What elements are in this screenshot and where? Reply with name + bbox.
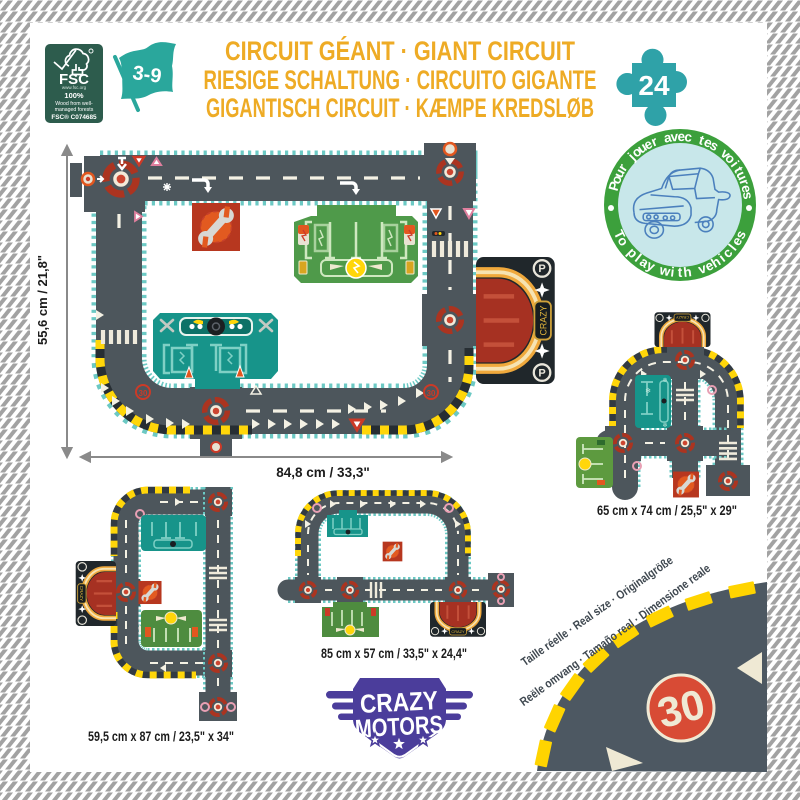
svg-text:managed forests: managed forests [55,107,94,113]
svg-text:CIRCUIT GÉANT · GIANT CIRCUIT: CIRCUIT GÉANT · GIANT CIRCUIT [225,35,575,66]
svg-text:84,8 cm / 33,3": 84,8 cm / 33,3" [276,465,369,480]
svg-text:65 cm x 74 cm / 25,5" x 29": 65 cm x 74 cm / 25,5" x 29" [597,503,737,518]
svg-text:❄: ❄ [645,387,651,395]
svg-text:30: 30 [139,389,148,398]
svg-text:P: P [538,263,545,275]
svg-text:100%: 100% [64,91,84,100]
svg-text:❄: ❄ [662,422,667,429]
svg-text:59,5 cm x 87 cm / 23,5" x 34": 59,5 cm x 87 cm / 23,5" x 34" [88,729,234,744]
svg-text:24: 24 [638,70,670,101]
svg-text:❄: ❄ [662,377,667,384]
svg-text:RIESIGE SCHALTUNG · CIRCUITO G: RIESIGE SCHALTUNG · CIRCUITO GIGANTE [204,65,597,95]
svg-text:FSC® C074685: FSC® C074685 [51,113,97,121]
svg-text:P: P [538,368,545,380]
svg-text:55,6 cm / 21,8": 55,6 cm / 21,8" [35,255,50,345]
svg-text:85 cm x 57 cm / 33,5" x 24,4": 85 cm x 57 cm / 33,5" x 24,4" [321,646,467,661]
svg-text:3-9: 3-9 [131,62,163,88]
svg-text:GIGANTISCH CIRCUIT · KÆMPE KRE: GIGANTISCH CIRCUIT · KÆMPE KREDSLØB [206,93,594,123]
svg-text:h: h [683,264,693,280]
svg-text:30: 30 [427,389,436,398]
svg-text:www.fsc.org: www.fsc.org [62,85,87,90]
